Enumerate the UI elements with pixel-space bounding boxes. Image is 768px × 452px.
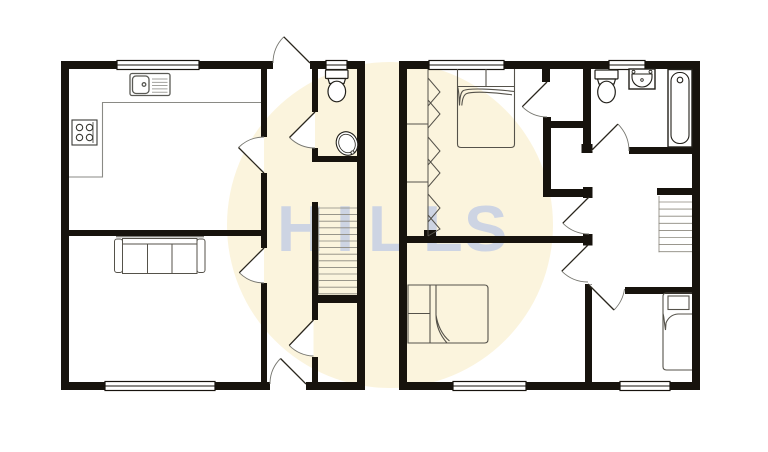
svg-text:HILLS: HILLS [277,192,507,265]
